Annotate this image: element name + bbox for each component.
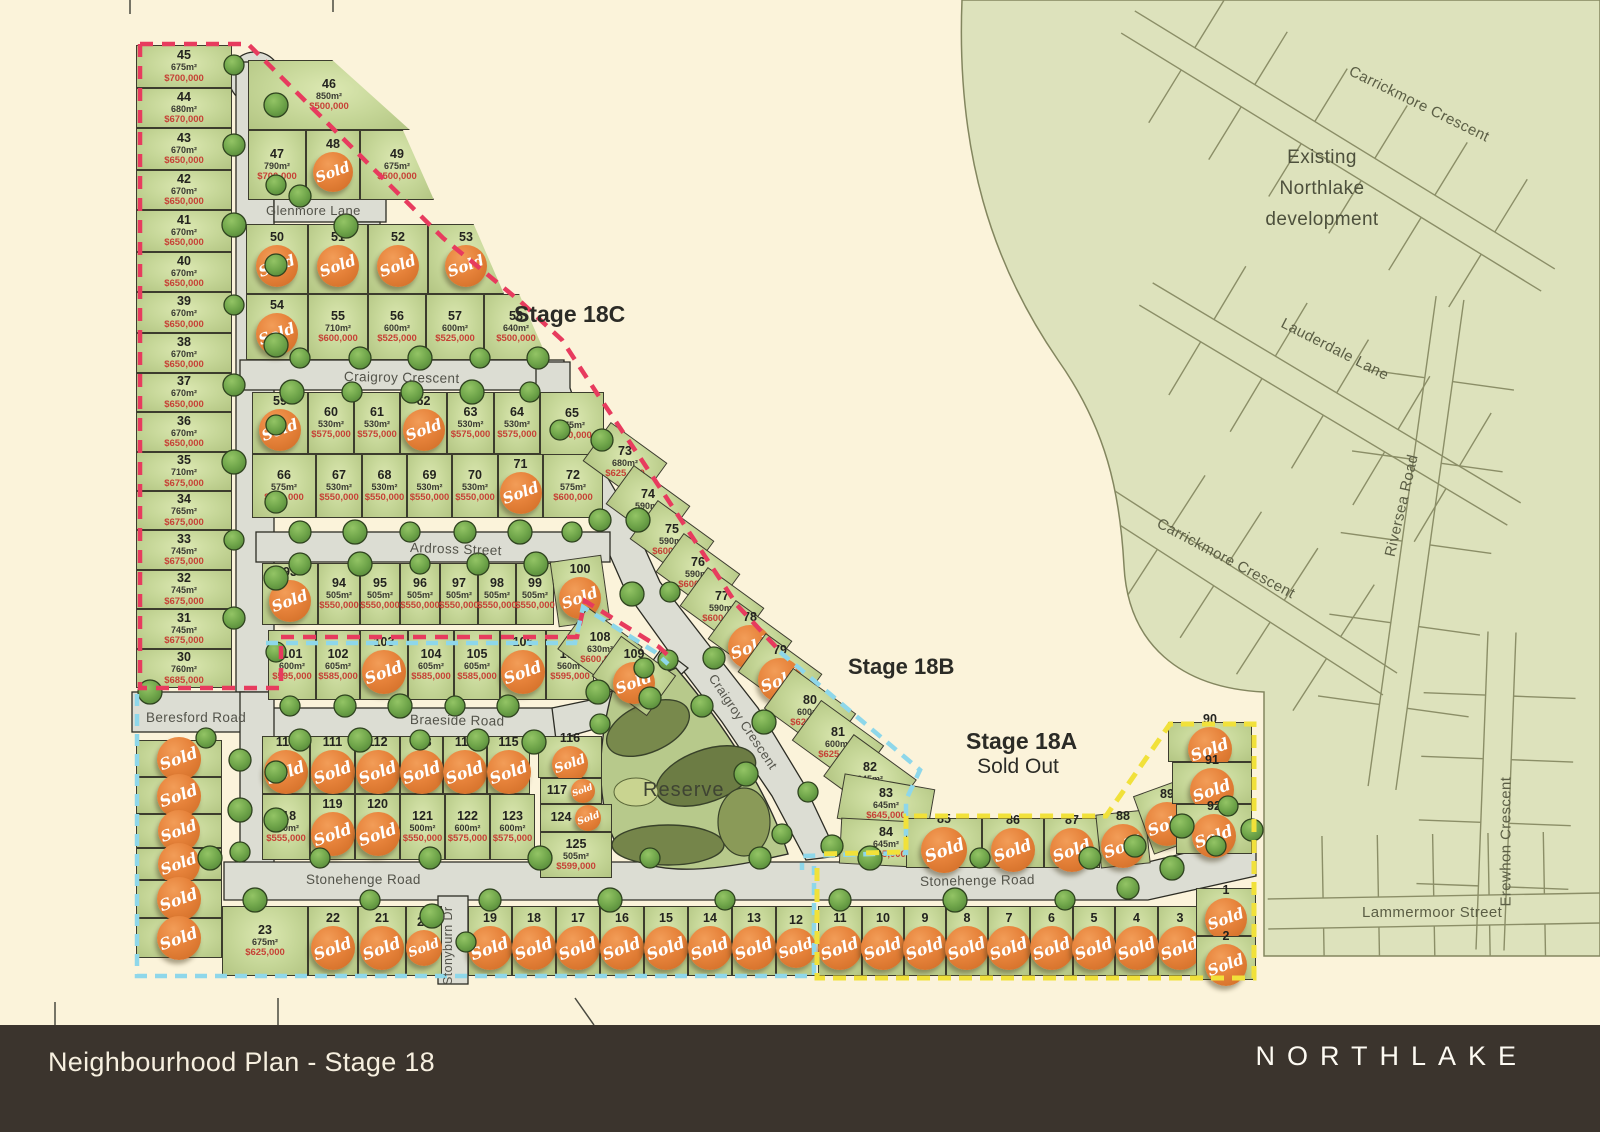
lot-118: 118530m²$555,000 xyxy=(262,794,310,860)
lot-area: 760m² xyxy=(171,665,197,674)
sold-badge: Sold xyxy=(991,828,1035,872)
lot-43: 43670m²$650,000 xyxy=(136,128,232,170)
lot-93: 93Sold xyxy=(262,563,318,625)
sold-badge: Sold xyxy=(732,926,776,970)
lot-area: 670m² xyxy=(171,350,197,359)
lot-area: 530m² xyxy=(371,483,397,492)
lot-price: $650,000 xyxy=(164,279,204,289)
lot-number: 37 xyxy=(177,375,191,388)
lot-17: 17Sold xyxy=(556,906,600,976)
lot-number: 70 xyxy=(468,469,482,482)
lot-19: 19Sold xyxy=(468,906,512,976)
lot-number: 5 xyxy=(1091,912,1098,925)
sold-badge: Sold xyxy=(317,245,359,287)
lot-number: 93 xyxy=(283,566,297,579)
lot-area: 645m² xyxy=(873,840,899,849)
lot-number: 102 xyxy=(328,648,349,661)
lot-price: $550,000 xyxy=(439,601,479,611)
lot-number: 87 xyxy=(1065,814,1079,827)
lot-104: 104605m²$585,000 xyxy=(408,630,454,700)
lot-15: 15Sold xyxy=(644,906,688,976)
lot-38: 38670m²$650,000 xyxy=(136,333,232,373)
lot-number: 71 xyxy=(514,458,528,471)
lot-area: 530m² xyxy=(318,420,344,429)
lot-number: 79 xyxy=(773,644,787,657)
sold-badge: Sold xyxy=(945,926,989,970)
sold-badge: Sold xyxy=(311,926,355,970)
sold-badge: Sold xyxy=(313,152,353,192)
lot-price: $650,000 xyxy=(164,360,204,370)
lot-price: $600,000 xyxy=(553,493,593,503)
sold-badge: Sold xyxy=(264,750,308,794)
lot-number: 65 xyxy=(565,407,579,420)
lot-price: $645,000 xyxy=(866,850,906,860)
lot-97: 97505m²$550,000 xyxy=(440,563,478,625)
lot-price: $600,000 xyxy=(318,334,358,344)
lot-price: $575,000 xyxy=(497,430,537,440)
lot-4: 4Sold xyxy=(1115,906,1158,976)
lot-price: $650,000 xyxy=(552,431,592,441)
lot-112: 112Sold xyxy=(355,736,400,794)
lot-number: 47 xyxy=(270,148,284,161)
lot-number: 50 xyxy=(270,231,284,244)
lot-8: 8Sold xyxy=(946,906,988,976)
lot-number: 110 xyxy=(276,736,296,749)
lot-95: 95505m²$550,000 xyxy=(360,563,400,625)
lot-120: 120Sold xyxy=(355,794,400,860)
lot-50: 50Sold xyxy=(246,224,308,294)
lot-37: 37670m²$650,000 xyxy=(136,373,232,412)
sold-badge: Sold xyxy=(406,930,442,966)
lot-number: 67 xyxy=(332,469,346,482)
lot-area: 530m² xyxy=(326,483,352,492)
lot-price: $675,000 xyxy=(164,518,204,528)
sold-badge: Sold xyxy=(356,812,400,856)
lot-14: 14Sold xyxy=(688,906,732,976)
lot-number: 61 xyxy=(370,406,384,419)
lot-number: 74 xyxy=(641,488,655,501)
lot-price: $700,000 xyxy=(164,74,204,84)
lot-21: 21Sold xyxy=(358,906,406,976)
lot-32: 32745m²$675,000 xyxy=(136,570,232,609)
lot-price: $550,000 xyxy=(360,601,400,611)
lot-number: 122 xyxy=(457,810,478,823)
lot-53: 53Sold xyxy=(428,224,504,294)
lot-area: 575m² xyxy=(559,421,585,430)
lot-number: 40 xyxy=(177,255,191,268)
sold-badge: Sold xyxy=(360,926,404,970)
lot-51: 51Sold xyxy=(308,224,368,294)
lot-number: 116 xyxy=(560,732,580,745)
sold-badge: Sold xyxy=(613,662,655,704)
lot-99: 99505m²$550,000 xyxy=(516,563,554,625)
lot-55: 55710m²$600,000 xyxy=(308,294,368,360)
lot-63: 63530m²$575,000 xyxy=(447,392,494,454)
sold-badge: Sold xyxy=(575,805,601,831)
lot-number: 56 xyxy=(390,310,404,323)
lot-area: 605m² xyxy=(464,662,490,671)
lot-u4: Sold xyxy=(136,848,222,880)
lot-number: 2 xyxy=(1223,930,1230,943)
lot-number: 95 xyxy=(373,577,387,590)
lot-price: $575,000 xyxy=(493,834,533,844)
lot-area: 505m² xyxy=(407,591,433,600)
sold-badge: Sold xyxy=(377,245,419,287)
lot-price: $555,000 xyxy=(266,834,306,844)
lot-price: $585,000 xyxy=(318,672,358,682)
lot-number: 125 xyxy=(566,838,587,851)
lot-number: 76 xyxy=(691,556,705,569)
neighbourhood-plan: 45675m²$700,00044680m²$670,00043670m²$65… xyxy=(0,0,1600,1132)
lot-area: 505m² xyxy=(326,591,352,600)
northlake-logo: NORTHLAKE xyxy=(1255,1041,1528,1072)
lot-101: 101600m²$595,000 xyxy=(268,630,316,700)
lot-47: 47790m²$700,000 xyxy=(248,130,306,200)
sold-badge: Sold xyxy=(571,779,595,803)
lot-area: 745m² xyxy=(171,586,197,595)
lot-price: $700,000 xyxy=(257,172,297,182)
lot-area: 850m² xyxy=(316,92,342,101)
lot-103: 103Sold xyxy=(360,630,408,700)
lot-119: 119Sold xyxy=(310,794,355,860)
lot-number: 34 xyxy=(177,493,191,506)
lot-area: 790m² xyxy=(264,162,290,171)
lot-price: $650,000 xyxy=(164,156,204,166)
lot-number: 35 xyxy=(177,454,191,467)
lot-number: 15 xyxy=(659,912,673,925)
lot-area: 505m² xyxy=(484,591,510,600)
lot-number: 80 xyxy=(803,694,817,707)
lot-area: 745m² xyxy=(171,547,197,556)
sold-badge: Sold xyxy=(403,409,445,451)
lot-u1: Sold xyxy=(136,740,222,777)
lot-price: $685,000 xyxy=(164,676,204,686)
lot-number: 121 xyxy=(412,810,433,823)
lot-number: 84 xyxy=(879,826,893,839)
lot-70: 70530m²$550,000 xyxy=(452,454,498,518)
lot-price: $595,000 xyxy=(272,672,312,682)
lot-number: 64 xyxy=(510,406,524,419)
lot-area: 505m² xyxy=(446,591,472,600)
lot-area: 530m² xyxy=(416,483,442,492)
lot-area: 530m² xyxy=(457,420,483,429)
lot-area: 645m² xyxy=(873,801,899,810)
sold-badge: Sold xyxy=(1072,926,1116,970)
sold-badge: Sold xyxy=(157,877,201,921)
lot-number: 66 xyxy=(277,469,291,482)
lot-area: 680m² xyxy=(171,105,197,114)
lot-area: 505m² xyxy=(522,591,548,600)
lot-number: 36 xyxy=(177,415,191,428)
lot-number: 9 xyxy=(922,912,929,925)
sold-badge: Sold xyxy=(861,926,905,970)
lot-area: 530m² xyxy=(504,420,530,429)
sold-badge: Sold xyxy=(500,472,542,514)
sold-badge: Sold xyxy=(487,750,531,794)
lot-number: 49 xyxy=(390,148,404,161)
lot-2: 2Sold xyxy=(1196,936,1256,980)
lot-price: $550,000 xyxy=(477,601,517,611)
lot-23: 23675m²$625,000 xyxy=(222,906,308,976)
lot-area: 670m² xyxy=(171,389,197,398)
lot-number: 123 xyxy=(502,810,523,823)
lot-10: 10Sold xyxy=(862,906,904,976)
lot-number: 94 xyxy=(332,577,346,590)
lot-number: 21 xyxy=(375,912,389,925)
lot-number: 99 xyxy=(528,577,542,590)
lot-number: 117 xyxy=(547,784,567,797)
lot-number: 38 xyxy=(177,336,191,349)
lot-area: 710m² xyxy=(171,468,197,477)
lot-42: 42670m²$650,000 xyxy=(136,170,232,210)
lot-59: 59Sold xyxy=(252,392,308,454)
lot-52: 52Sold xyxy=(368,224,428,294)
lot-number: 51 xyxy=(331,231,345,244)
lot-price: $550,000 xyxy=(365,493,405,503)
lot-105: 105605m²$585,000 xyxy=(454,630,500,700)
lot-price: $525,000 xyxy=(377,334,417,344)
lot-113: 113Sold xyxy=(400,736,443,794)
lot-number: 103 xyxy=(374,636,395,649)
lot-price: $550,000 xyxy=(400,601,440,611)
lot-price: $650,000 xyxy=(164,439,204,449)
lot-price: $599,000 xyxy=(556,862,596,872)
sold-badge: Sold xyxy=(1205,944,1247,986)
lot-58: 58640m²$500,000 xyxy=(484,294,548,360)
lot-area: 530m² xyxy=(364,420,390,429)
lot-price: $550,000 xyxy=(455,493,495,503)
lot-number: 4 xyxy=(1133,912,1140,925)
lot-number: 98 xyxy=(490,577,504,590)
lot-number: 57 xyxy=(448,310,462,323)
sold-badge: Sold xyxy=(776,928,816,968)
lot-area: 670m² xyxy=(171,429,197,438)
lot-110: 110Sold xyxy=(262,736,310,794)
lot-number: 8 xyxy=(964,912,971,925)
lot-price: $675,000 xyxy=(164,636,204,646)
lot-number: 77 xyxy=(715,590,729,603)
lot-number: 113 xyxy=(411,736,431,749)
sold-badge: Sold xyxy=(356,750,400,794)
lot-number: 82 xyxy=(863,761,877,774)
lot-number: 48 xyxy=(326,138,340,151)
lot-6: 6Sold xyxy=(1030,906,1073,976)
lot-number: 69 xyxy=(423,469,437,482)
lot-30: 30760m²$685,000 xyxy=(136,649,232,688)
sold-badge: Sold xyxy=(600,926,644,970)
lot-area: 670m² xyxy=(171,146,197,155)
lot-number: 83 xyxy=(879,787,893,800)
lot-18: 18Sold xyxy=(512,906,556,976)
sold-badge: Sold xyxy=(688,926,732,970)
lot-114: 114Sold xyxy=(443,736,487,794)
sold-badge: Sold xyxy=(1115,926,1159,970)
lot-area: 675m² xyxy=(252,938,278,947)
lot-number: 63 xyxy=(464,406,478,419)
lot-number: 120 xyxy=(367,798,388,811)
sold-badge: Sold xyxy=(556,926,600,970)
lot-price: $650,000 xyxy=(164,320,204,330)
lot-number: 81 xyxy=(831,726,845,739)
lot-number: 109 xyxy=(624,648,645,661)
lot-number: 85 xyxy=(937,813,951,826)
lot-area: 670m² xyxy=(171,228,197,237)
lot-number: 1 xyxy=(1223,884,1230,897)
footer-bar: Neighbourhood Plan - Stage 18 NORTHLAKE xyxy=(0,1025,1600,1132)
lot-number: 10 xyxy=(876,912,890,925)
lot-u6: Sold xyxy=(136,918,222,958)
lot-61: 61530m²$575,000 xyxy=(354,392,400,454)
lot-5: 5Sold xyxy=(1073,906,1115,976)
lot-number: 43 xyxy=(177,132,191,145)
lot-number: 100 xyxy=(570,563,591,576)
lot-98: 98505m²$550,000 xyxy=(478,563,516,625)
sold-badge: Sold xyxy=(1030,926,1074,970)
sold-badge: Sold xyxy=(362,650,406,694)
lot-price: $575,000 xyxy=(357,430,397,440)
lot-number: 108 xyxy=(590,631,611,644)
lot-number: 11 xyxy=(833,912,846,925)
lot-87: 87Sold xyxy=(1044,818,1100,868)
lot-price: $675,000 xyxy=(164,479,204,489)
lot-49: 49675m²$500,000 xyxy=(360,130,434,200)
lot-number: 118 xyxy=(276,810,296,823)
lot-number: 53 xyxy=(459,231,473,244)
lot-price: $500,000 xyxy=(377,172,417,182)
lot-36: 36670m²$650,000 xyxy=(136,412,232,452)
lot-106: 106Sold xyxy=(500,630,546,700)
lot-number: 6 xyxy=(1048,912,1055,925)
lot-54: 54Sold xyxy=(246,294,308,360)
lot-area: 530m² xyxy=(462,483,488,492)
lot-number: 92 xyxy=(1207,800,1221,813)
lot-number: 32 xyxy=(177,572,191,585)
plan-title: Neighbourhood Plan - Stage 18 xyxy=(48,1047,435,1078)
lot-price: $550,000 xyxy=(410,493,450,503)
lot-number: 114 xyxy=(455,736,475,749)
lot-31: 31745m²$675,000 xyxy=(136,609,232,649)
lot-price: $550,000 xyxy=(319,601,359,611)
lot-125: 125505m²$599,000 xyxy=(540,832,612,878)
sold-badge: Sold xyxy=(644,926,688,970)
lot-area: 600m² xyxy=(454,824,480,833)
lot-92: 92Sold xyxy=(1176,804,1252,854)
lot-number: 3 xyxy=(1177,912,1184,925)
lot-number: 20 xyxy=(417,916,431,929)
lot-price: $675,000 xyxy=(164,597,204,607)
lot-124: 124Sold xyxy=(540,804,612,832)
lot-16: 16Sold xyxy=(600,906,644,976)
lot-area: 605m² xyxy=(325,662,351,671)
lot-number: 112 xyxy=(367,736,387,749)
lot-number: 52 xyxy=(391,231,405,244)
sold-badge: Sold xyxy=(1101,824,1145,868)
lot-price: $575,000 xyxy=(451,430,491,440)
sold-badge: Sold xyxy=(818,926,862,970)
lot-number: 13 xyxy=(747,912,761,925)
lot-number: 7 xyxy=(1006,912,1013,925)
lot-number: 44 xyxy=(177,91,191,104)
lot-number: 73 xyxy=(618,445,632,458)
sold-badge: Sold xyxy=(400,750,444,794)
lot-13: 13Sold xyxy=(732,906,776,976)
lot-45: 45675m²$700,000 xyxy=(136,45,232,88)
sold-badge: Sold xyxy=(443,750,487,794)
lot-number: 72 xyxy=(566,469,580,482)
lot-area: 670m² xyxy=(171,187,197,196)
lot-123: 123600m²$575,000 xyxy=(490,794,535,860)
lot-u2: Sold xyxy=(136,777,222,814)
lot-price: $585,000 xyxy=(457,672,497,682)
lot-price: $550,000 xyxy=(515,601,555,611)
sold-badge: Sold xyxy=(501,650,545,694)
lot-area: 505m² xyxy=(367,591,393,600)
lot-number: 33 xyxy=(177,533,191,546)
lot-price: $575,000 xyxy=(311,430,351,440)
lot-85: 85Sold xyxy=(906,818,982,868)
lot-area: 500m² xyxy=(409,824,435,833)
lot-price: $585,000 xyxy=(411,672,451,682)
lot-number: 104 xyxy=(421,648,442,661)
sold-badge: Sold xyxy=(445,245,487,287)
lot-number: 23 xyxy=(258,924,272,937)
lot-7: 7Sold xyxy=(988,906,1030,976)
lot-price: $595,000 xyxy=(550,672,590,682)
sold-badge: Sold xyxy=(157,916,201,960)
lot-121: 121500m²$550,000 xyxy=(400,794,445,860)
lot-u5: Sold xyxy=(136,880,222,918)
lot-area: 600m² xyxy=(499,824,525,833)
lot-area: 640m² xyxy=(503,324,529,333)
lot-111: 111Sold xyxy=(310,736,355,794)
lot-price: $500,000 xyxy=(309,102,349,112)
sold-badge: Sold xyxy=(921,827,967,873)
lot-area: 600m² xyxy=(279,662,305,671)
sold-badge: Sold xyxy=(1050,828,1094,872)
lot-116: 116Sold xyxy=(538,736,602,778)
lot-62: 62Sold xyxy=(400,392,447,454)
lot-number: 101 xyxy=(282,648,303,661)
lot-area: 670m² xyxy=(171,309,197,318)
lot-number: 119 xyxy=(322,798,342,811)
lot-71: 71Sold xyxy=(498,454,543,518)
lot-9: 9Sold xyxy=(904,906,946,976)
lot-number: 54 xyxy=(270,299,284,312)
lot-117: 117Sold xyxy=(540,778,602,804)
lot-area: 505m² xyxy=(563,852,589,861)
lot-area: 530m² xyxy=(273,824,299,833)
lot-number: 111 xyxy=(323,736,342,749)
lot-number: 97 xyxy=(452,577,466,590)
lot-area: 675m² xyxy=(384,162,410,171)
sold-badge: Sold xyxy=(552,746,588,782)
sold-badge: Sold xyxy=(269,580,311,622)
lot-area: 575m² xyxy=(560,483,586,492)
lot-price: $650,000 xyxy=(164,197,204,207)
lot-number: 42 xyxy=(177,173,191,186)
lot-94: 94505m²$550,000 xyxy=(318,563,360,625)
lot-area: 605m² xyxy=(418,662,444,671)
lot-39: 39670m²$650,000 xyxy=(136,292,232,333)
lot-number: 22 xyxy=(326,912,340,925)
lot-20: 20Sold xyxy=(406,906,442,976)
lot-number: 45 xyxy=(177,49,191,62)
lot-number: 124 xyxy=(551,811,572,824)
lot-price: $625,000 xyxy=(245,948,285,958)
lot-area: 675m² xyxy=(171,63,197,72)
lot-number: 86 xyxy=(1006,814,1020,827)
lot-12: 12Sold xyxy=(776,906,816,976)
